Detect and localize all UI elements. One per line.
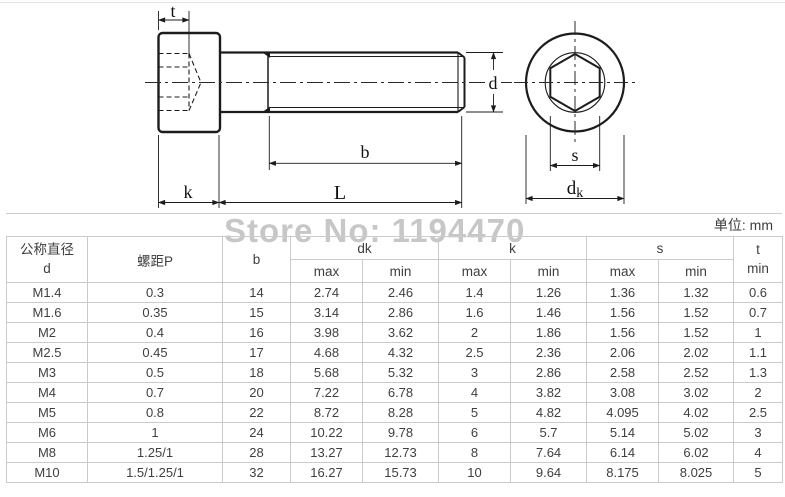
spec-table-body: M1.40.3142.742.461.41.261.361.320.6M1.60… xyxy=(7,283,783,483)
table-cell: M5 xyxy=(7,403,88,423)
table-cell: 3.02 xyxy=(659,383,734,403)
table-cell: 10 xyxy=(439,463,511,483)
table-cell: M2 xyxy=(7,323,88,343)
table-cell: 12.73 xyxy=(363,443,439,463)
table-cell: 16 xyxy=(223,323,291,343)
table-cell: 14 xyxy=(223,283,291,303)
dim-label-d: d xyxy=(489,73,498,93)
table-cell: 1.6 xyxy=(439,303,511,323)
col-group-s: s xyxy=(587,237,734,260)
table-cell: 1.5/1.25/1 xyxy=(88,463,223,483)
table-cell: 0.45 xyxy=(88,343,223,363)
table-cell: 5.68 xyxy=(291,363,363,383)
spec-table: 公称直径 d 螺距P b dk k s t min max min xyxy=(6,236,783,483)
diameter-label-d: d xyxy=(7,260,87,278)
table-cell: 2 xyxy=(734,383,783,403)
table-cell: 1.32 xyxy=(659,283,734,303)
table-row: M101.5/1.25/13216.2715.73109.648.1758.02… xyxy=(7,463,783,483)
table-cell: 9.64 xyxy=(511,463,587,483)
table-cell: 20 xyxy=(223,383,291,403)
table-cell: 0.5 xyxy=(88,363,223,383)
table-cell: 5.14 xyxy=(587,423,659,443)
table-cell: 0.7 xyxy=(88,383,223,403)
screw-technical-drawing: t k L b d s dk xyxy=(0,0,785,213)
table-cell: 0.35 xyxy=(88,303,223,323)
table-cell: 1.4 xyxy=(439,283,511,303)
table-row: M81.25/12813.2712.7387.646.146.024 xyxy=(7,443,783,463)
table-cell: 1.25/1 xyxy=(88,443,223,463)
table-cell: 1.1 xyxy=(734,343,783,363)
dim-label-k: k xyxy=(184,182,193,202)
table-cell: M1.6 xyxy=(7,303,88,323)
table-cell: 1.3 xyxy=(734,363,783,383)
table-cell: 8.175 xyxy=(587,463,659,483)
table-cell: M8 xyxy=(7,443,88,463)
table-cell: 2.86 xyxy=(511,363,587,383)
table-cell: M10 xyxy=(7,463,88,483)
table-cell: 1.86 xyxy=(511,323,587,343)
dim-label-b: b xyxy=(361,142,370,162)
table-cell: 2 xyxy=(439,323,511,343)
table-cell: 2.5 xyxy=(734,403,783,423)
table-cell: 1 xyxy=(88,423,223,443)
dk-min-header: min xyxy=(363,260,439,283)
table-cell: 8 xyxy=(439,443,511,463)
table-cell: 2.74 xyxy=(291,283,363,303)
col-header-b: b xyxy=(223,237,291,283)
s-min-header: min xyxy=(659,260,734,283)
table-cell: 15 xyxy=(223,303,291,323)
table-cell: 13.27 xyxy=(291,443,363,463)
table-cell: 4.68 xyxy=(291,343,363,363)
table-cell: 3.14 xyxy=(291,303,363,323)
table-cell: 4.32 xyxy=(363,343,439,363)
table-row: M612410.229.7865.75.145.023 xyxy=(7,423,783,443)
table-cell: 0.8 xyxy=(88,403,223,423)
table-cell: 8.28 xyxy=(363,403,439,423)
dk-max-header: max xyxy=(291,260,363,283)
table-cell: 2.86 xyxy=(363,303,439,323)
k-min-header: min xyxy=(511,260,587,283)
table-cell: 5.7 xyxy=(511,423,587,443)
table-cell: 1 xyxy=(734,323,783,343)
table-cell: 3.08 xyxy=(587,383,659,403)
table-cell: 3.98 xyxy=(291,323,363,343)
end-view xyxy=(514,21,636,145)
table-row: M20.4163.983.6221.861.561.521 xyxy=(7,323,783,343)
table-cell: 7.22 xyxy=(291,383,363,403)
table-cell: M2.5 xyxy=(7,343,88,363)
table-cell: M1.4 xyxy=(7,283,88,303)
table-cell: 0.7 xyxy=(734,303,783,323)
dim-label-l: L xyxy=(334,182,346,204)
table-row: M50.8228.728.2854.824.0954.022.5 xyxy=(7,403,783,423)
table-cell: 1.36 xyxy=(587,283,659,303)
table-cell: 5 xyxy=(734,463,783,483)
table-cell: 3.62 xyxy=(363,323,439,343)
col-header-t: t min xyxy=(734,237,783,283)
k-max-header: max xyxy=(439,260,511,283)
table-cell: 4.095 xyxy=(587,403,659,423)
table-cell: 10.22 xyxy=(291,423,363,443)
table-cell: M3 xyxy=(7,363,88,383)
side-view xyxy=(145,33,517,132)
table-cell: 1.56 xyxy=(587,323,659,343)
table-cell: 8.72 xyxy=(291,403,363,423)
table-cell: 0.6 xyxy=(734,283,783,303)
table-row: M30.5185.685.3232.862.582.521.3 xyxy=(7,363,783,383)
table-cell: 1.52 xyxy=(659,303,734,323)
t-min-label: min xyxy=(734,260,782,278)
table-cell: 9.78 xyxy=(363,423,439,443)
table-cell: 2.02 xyxy=(659,343,734,363)
table-cell: 4.82 xyxy=(511,403,587,423)
table-row: M1.40.3142.742.461.41.261.361.320.6 xyxy=(7,283,783,303)
table-cell: 3 xyxy=(439,363,511,383)
units-note: 单位: mm xyxy=(6,213,782,236)
table-cell: 3.82 xyxy=(511,383,587,403)
table-cell: 0.3 xyxy=(88,283,223,303)
table-cell: 4 xyxy=(734,443,783,463)
col-group-dk: dk xyxy=(291,237,439,260)
table-cell: 1.56 xyxy=(587,303,659,323)
table-cell: 2.52 xyxy=(659,363,734,383)
table-cell: 6.14 xyxy=(587,443,659,463)
table-cell: 5.32 xyxy=(363,363,439,383)
table-cell: 2.5 xyxy=(439,343,511,363)
screw-spec-sheet: t k L b d s dk Store No: 1194470 单位: mm … xyxy=(0,0,785,497)
table-row: M1.60.35153.142.861.61.461.561.520.7 xyxy=(7,303,783,323)
table-cell: 2.46 xyxy=(363,283,439,303)
table-cell: 1.46 xyxy=(511,303,587,323)
table-cell: 18 xyxy=(223,363,291,383)
t-label: t xyxy=(734,241,782,259)
table-row: M2.50.45174.684.322.52.362.062.021.1 xyxy=(7,343,783,363)
table-cell: 2.36 xyxy=(511,343,587,363)
table-cell: 6.78 xyxy=(363,383,439,403)
col-group-k: k xyxy=(439,237,587,260)
table-cell: 0.4 xyxy=(88,323,223,343)
table-cell: 3 xyxy=(734,423,783,443)
table-cell: 22 xyxy=(223,403,291,423)
table-cell: 24 xyxy=(223,423,291,443)
col-header-pitch: 螺距P xyxy=(88,237,223,283)
table-cell: 32 xyxy=(223,463,291,483)
table-cell: 4 xyxy=(439,383,511,403)
side-view-dimensions xyxy=(159,11,504,208)
s-max-header: max xyxy=(587,260,659,283)
table-cell: 2.06 xyxy=(587,343,659,363)
diameter-label-cn: 公称直径 xyxy=(7,241,87,259)
table-cell: M6 xyxy=(7,423,88,443)
dim-label-dk: dk xyxy=(567,178,584,201)
table-cell: 28 xyxy=(223,443,291,463)
table-cell: 5 xyxy=(439,403,511,423)
table-cell: 8.025 xyxy=(659,463,734,483)
spec-table-area: 单位: mm 公称直径 d 螺距P b dk k s xyxy=(6,213,782,483)
table-cell: M4 xyxy=(7,383,88,403)
table-cell: 5.02 xyxy=(659,423,734,443)
table-cell: 17 xyxy=(223,343,291,363)
dim-label-t: t xyxy=(170,1,175,21)
header-row-1: 公称直径 d 螺距P b dk k s t min xyxy=(7,237,783,260)
dim-label-s: s xyxy=(571,145,578,165)
table-cell: 1.52 xyxy=(659,323,734,343)
table-row: M40.7207.226.7843.823.083.022 xyxy=(7,383,783,403)
table-cell: 15.73 xyxy=(363,463,439,483)
table-cell: 16.27 xyxy=(291,463,363,483)
table-cell: 6.02 xyxy=(659,443,734,463)
table-cell: 4.02 xyxy=(659,403,734,423)
col-header-diameter: 公称直径 d xyxy=(7,237,88,283)
table-cell: 2.58 xyxy=(587,363,659,383)
table-cell: 6 xyxy=(439,423,511,443)
table-cell: 1.26 xyxy=(511,283,587,303)
table-cell: 7.64 xyxy=(511,443,587,463)
